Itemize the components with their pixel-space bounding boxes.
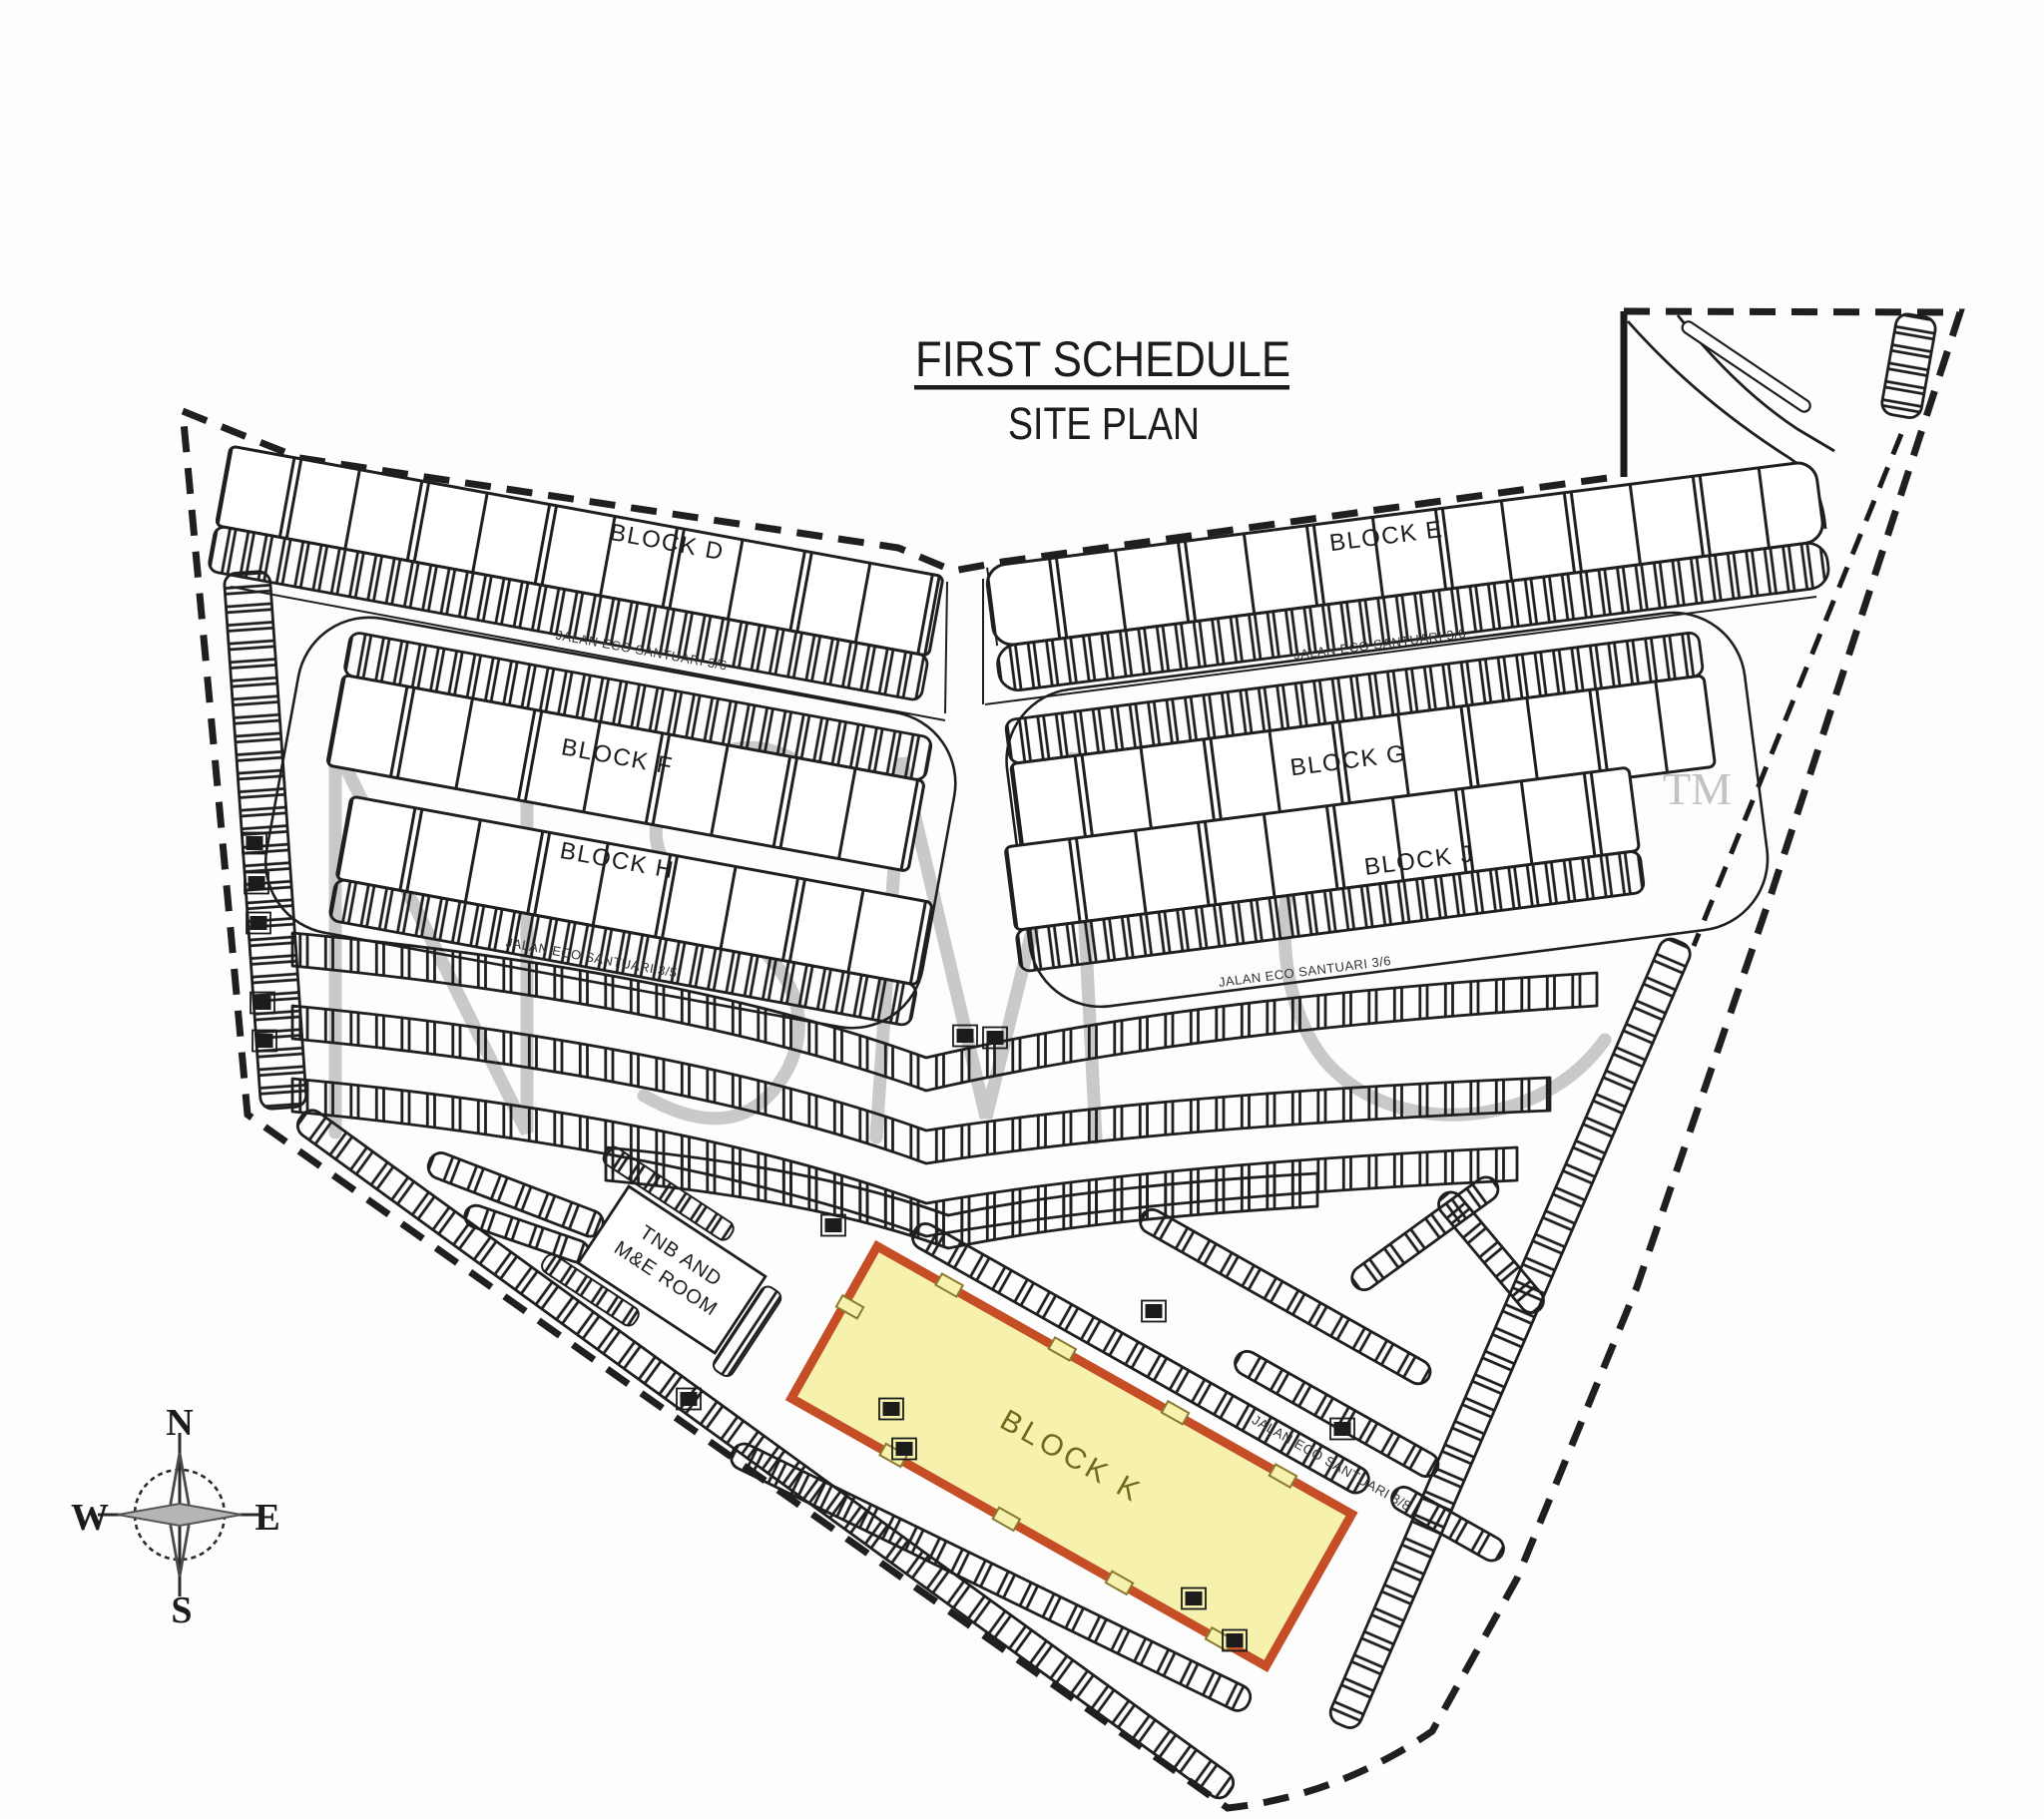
svg-text:SITE PLAN: SITE PLAN [1008, 398, 1200, 449]
svg-text:N: N [166, 1402, 193, 1444]
svg-text:W: W [71, 1497, 109, 1539]
svg-text:FIRST SCHEDULE: FIRST SCHEDULE [915, 331, 1290, 387]
svg-text:E: E [255, 1497, 279, 1539]
svg-text:S: S [171, 1590, 192, 1631]
